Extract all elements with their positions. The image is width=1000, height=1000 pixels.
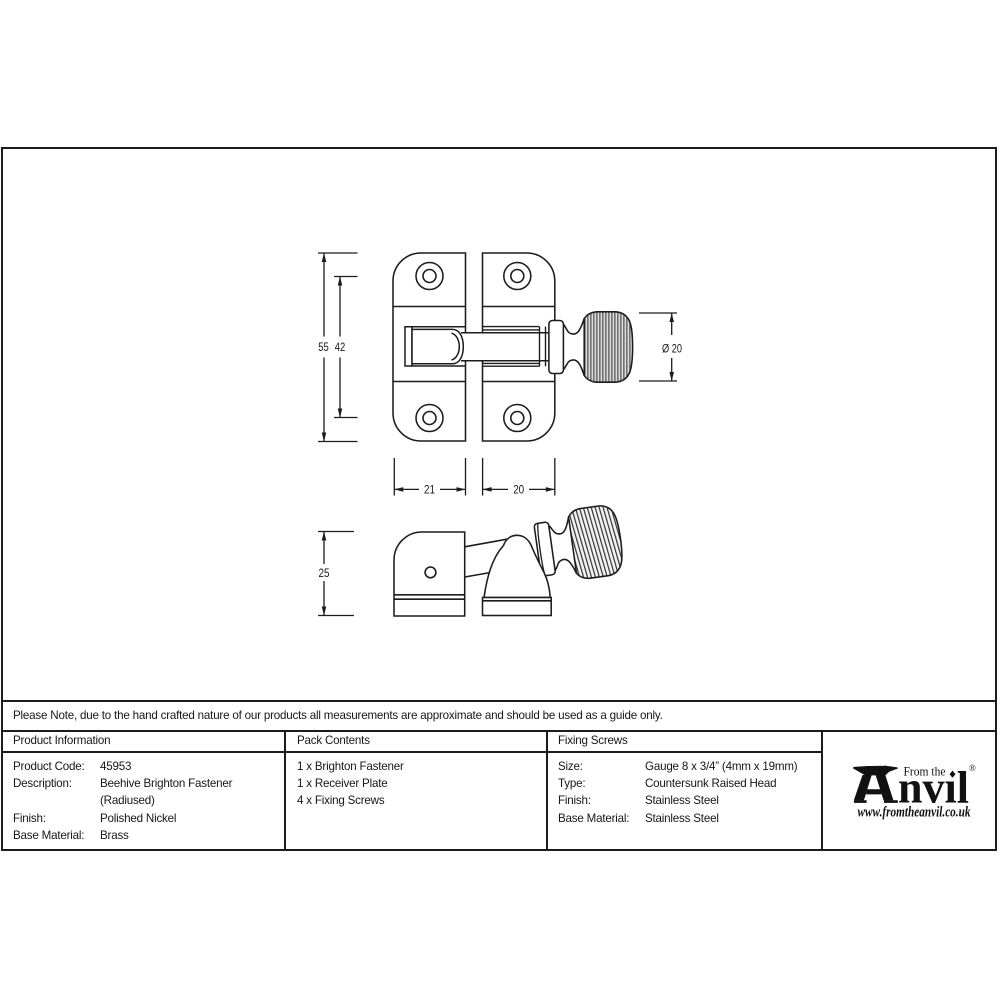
svg-text:Ø 20: Ø 20 — [662, 342, 682, 355]
svg-text:20: 20 — [513, 484, 524, 497]
svg-text:42: 42 — [335, 341, 346, 354]
svg-text:21: 21 — [424, 484, 435, 497]
svg-text:®: ® — [969, 763, 976, 773]
svg-text:www.fromtheanvil.co.uk: www.fromtheanvil.co.uk — [858, 805, 972, 821]
svg-text:25: 25 — [319, 567, 330, 580]
svg-text:55: 55 — [318, 341, 329, 354]
